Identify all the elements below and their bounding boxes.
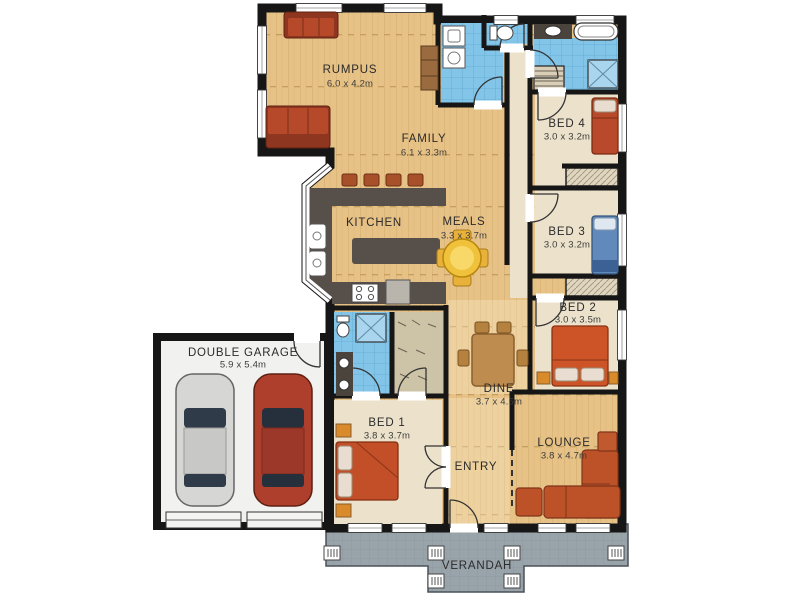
stove [352, 284, 378, 302]
room-label-meals: MEALS [443, 216, 486, 228]
room-label-dine: DINE [484, 383, 515, 395]
room-dims-dine: 3.7 x 4.5m [476, 397, 522, 408]
room-label-kitchen: KITCHEN [346, 217, 402, 229]
vanity-basin [545, 26, 561, 36]
bath-tub [574, 23, 618, 40]
garage-door-left [166, 512, 241, 528]
hall-carpet [510, 50, 528, 298]
bed3-robe [566, 278, 618, 296]
floor-plan-drawing [0, 0, 800, 600]
bed3-bed [592, 216, 618, 274]
room-dims-garage: 5.9 x 5.4m [220, 360, 266, 371]
room-dims-rumpus: 6.0 x 4.2m [327, 79, 373, 90]
room-dims-family: 6.1 x 3.3m [401, 148, 447, 159]
bed4-bed [592, 98, 618, 154]
room-label-bed4: BED 4 [548, 118, 585, 130]
kitchen-benches [308, 174, 446, 304]
room-label-garage: DOUBLE GARAGE [188, 347, 298, 359]
kitchen-island [352, 238, 440, 264]
kitchen-top-bench [332, 188, 446, 206]
ensuite-toilet [337, 316, 349, 337]
car-silver [176, 374, 234, 506]
bathroom-shower [588, 60, 618, 88]
lounge-side-table [598, 432, 617, 451]
room-dims-bed1: 3.8 x 3.7m [364, 431, 410, 442]
family-cabinet [421, 46, 438, 90]
rumpus-sofa-left [266, 106, 330, 148]
lounge-armchair [516, 488, 542, 516]
room-dims-bed3: 3.0 x 3.2m [544, 240, 590, 251]
room-label-entry: ENTRY [455, 461, 498, 473]
floor-plan: RUMPUS 6.0 x 4.2m FAMILY 6.1 x 3.3m KITC… [0, 0, 800, 600]
room-label-verandah: VERANDAH [442, 560, 512, 572]
car-red [254, 374, 312, 506]
room-label-bed1: BED 1 [368, 417, 405, 429]
room-label-bed3: BED 3 [548, 226, 585, 238]
bed4-robe [566, 168, 618, 186]
wc-toilet [490, 26, 513, 40]
laundry-tub [443, 26, 465, 46]
room-label-family: FAMILY [402, 133, 447, 145]
fridge [386, 280, 410, 304]
room-dims-bed2: 3.0 x 3.5m [555, 315, 601, 326]
ensuite-shower [356, 314, 386, 342]
washing-machine [443, 48, 465, 68]
verandah-deck [326, 524, 628, 592]
garage-door-right [247, 512, 322, 528]
room-label-lounge: LOUNGE [537, 437, 590, 449]
room-dims-meals: 3.3 x 3.7m [441, 231, 487, 242]
room-label-bed2: BED 2 [559, 302, 596, 314]
room-label-rumpus: RUMPUS [323, 64, 378, 76]
room-dims-lounge: 3.8 x 4.7m [541, 451, 587, 462]
rumpus-sofa-top [284, 12, 338, 38]
room-dims-bed4: 3.0 x 3.2m [544, 132, 590, 143]
